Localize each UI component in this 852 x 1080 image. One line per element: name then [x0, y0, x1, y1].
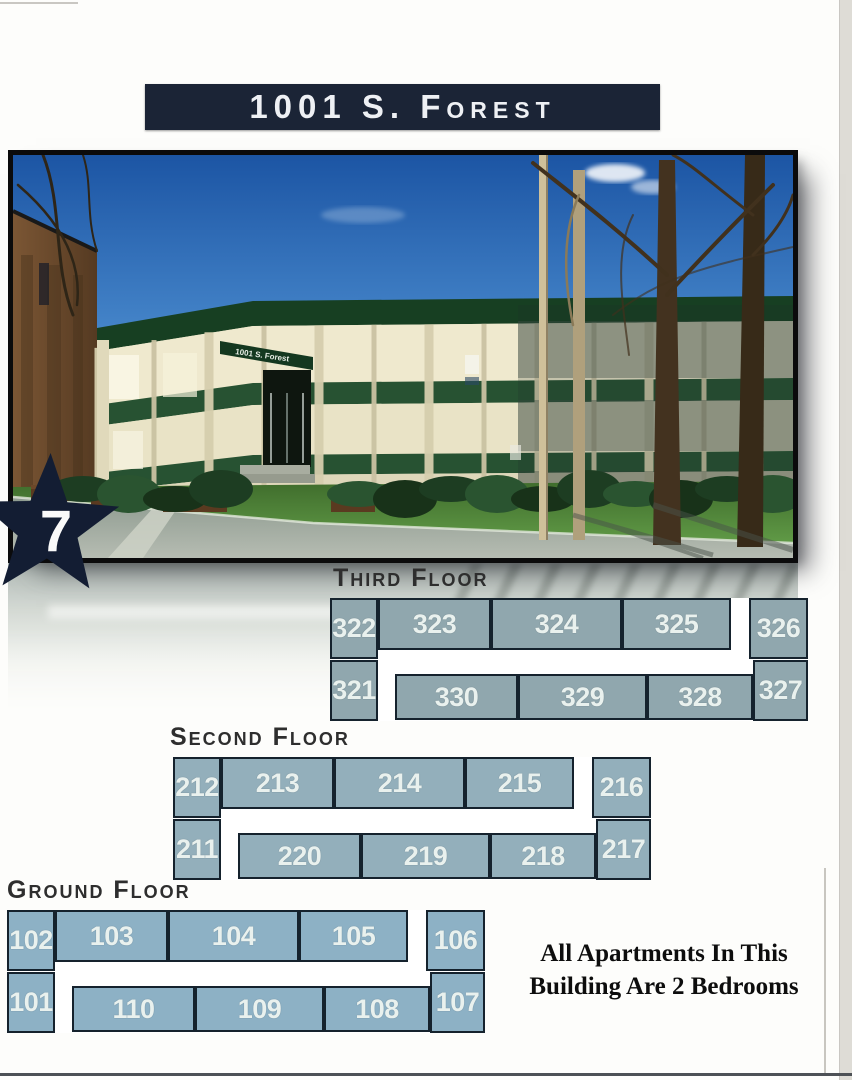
room-212: 212	[173, 757, 221, 818]
room-107: 107	[430, 972, 485, 1033]
room-number: 324	[535, 609, 579, 640]
room-number: 220	[278, 841, 322, 872]
room-number: 211	[176, 834, 218, 865]
floor-label-ground: Ground Floor	[7, 876, 191, 905]
room-number: 212	[175, 772, 219, 803]
room-325: 325	[622, 598, 731, 650]
room-326: 326	[749, 598, 808, 659]
room-number: 326	[757, 613, 801, 644]
room-106: 106	[426, 910, 485, 971]
room-219: 219	[361, 833, 490, 879]
title-banner: 1001 S. Forest	[145, 84, 660, 130]
cloud	[321, 207, 405, 223]
building-address-title: 1001 S. Forest	[249, 88, 555, 126]
room-number: 109	[238, 994, 282, 1025]
room-323: 323	[378, 598, 491, 650]
room-322: 322	[330, 598, 378, 659]
entrance-steps	[240, 465, 310, 474]
room-217: 217	[596, 819, 651, 880]
room-215: 215	[465, 757, 574, 809]
room-number: 105	[332, 921, 376, 952]
room-108: 108	[324, 986, 430, 1032]
room-number: 214	[378, 768, 422, 799]
room-328: 328	[647, 674, 753, 720]
room-327: 327	[753, 660, 808, 721]
room-number: 103	[90, 921, 134, 952]
room-109: 109	[195, 986, 324, 1032]
room-214: 214	[334, 757, 465, 809]
room-number: 322	[332, 613, 376, 644]
room-102: 102	[7, 910, 55, 971]
room-105: 105	[299, 910, 408, 962]
room-number: 328	[678, 682, 722, 713]
scan-artifact-vline	[824, 868, 826, 1076]
bedrooms-note: All Apartments In This Building Are 2 Be…	[514, 938, 814, 1003]
room-213: 213	[221, 757, 334, 809]
room-101: 101	[7, 972, 55, 1033]
room-330: 330	[395, 674, 518, 720]
room-number: 325	[655, 609, 699, 640]
room-number: 213	[256, 768, 300, 799]
room-number: 107	[436, 987, 480, 1018]
room-number: 219	[404, 841, 448, 872]
room-220: 220	[238, 833, 361, 879]
room-103: 103	[55, 910, 168, 962]
scan-edge-strip	[839, 0, 852, 1080]
room-number: 327	[759, 675, 803, 706]
room-number: 110	[112, 994, 154, 1025]
room-329: 329	[518, 674, 647, 720]
star-number: 7	[40, 499, 72, 564]
note-line-2: Building Are 2 Bedrooms	[514, 971, 814, 1004]
room-number: 216	[600, 772, 644, 803]
room-number: 108	[355, 994, 399, 1025]
room-110: 110	[72, 986, 195, 1032]
room-218: 218	[490, 833, 596, 879]
room-number: 321	[332, 675, 376, 706]
room-number: 217	[602, 834, 646, 865]
star-badge: 7	[0, 427, 148, 627]
room-321: 321	[330, 660, 378, 721]
note-line-1: All Apartments In This	[514, 938, 814, 971]
cloud	[585, 164, 645, 182]
room-number: 102	[9, 925, 53, 956]
room-324: 324	[491, 598, 622, 650]
tree-trunk	[573, 170, 585, 540]
room-number: 215	[498, 768, 542, 799]
room-number: 104	[212, 921, 256, 952]
room-number: 218	[521, 841, 565, 872]
floor-plan-second: 212213214215216211220219218217	[173, 757, 651, 880]
scan-artifact-line	[0, 2, 78, 4]
floor-plan-ground: 102103104105106101110109108107	[7, 910, 485, 1033]
floor-label-second: Second Floor	[170, 723, 350, 752]
room-211: 211	[173, 819, 221, 880]
room-number: 101	[9, 987, 53, 1018]
room-number: 106	[434, 925, 478, 956]
floor-label-third: Third Floor	[333, 564, 488, 593]
room-number: 329	[561, 682, 605, 713]
scanned-flyer-page: 1001 S. Forest	[0, 0, 852, 1080]
scan-bottom-border	[0, 1073, 852, 1076]
room-number: 330	[435, 682, 479, 713]
room-216: 216	[592, 757, 651, 818]
floor-plan-third: 322323324325326321330329328327	[330, 598, 808, 721]
room-104: 104	[168, 910, 299, 962]
room-number: 323	[413, 609, 457, 640]
